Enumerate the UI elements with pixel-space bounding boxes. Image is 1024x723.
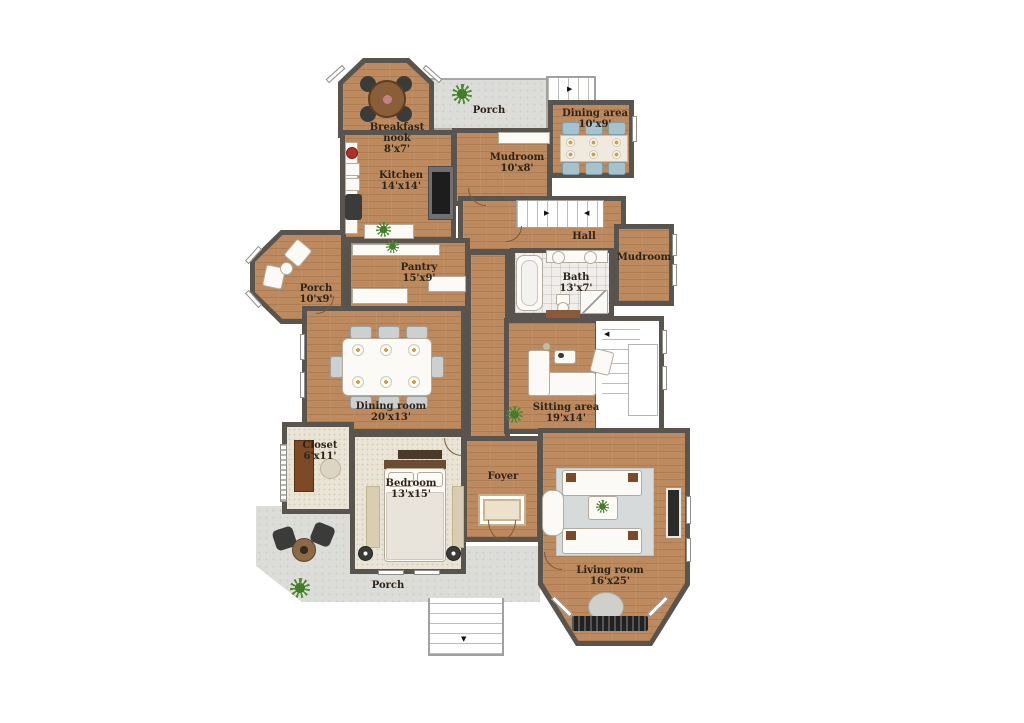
fireplace xyxy=(666,488,681,538)
stairs-left-arrow-icon: ◀ xyxy=(604,331,609,338)
hall-stairs-left-arrow-icon: ◀ xyxy=(584,210,589,217)
window xyxy=(686,538,691,562)
plant-icon xyxy=(452,84,472,104)
plate xyxy=(380,344,392,356)
bath-mat xyxy=(546,310,580,318)
bed-blanket xyxy=(386,492,444,560)
wall-oven xyxy=(345,163,360,176)
window xyxy=(662,366,667,390)
plate xyxy=(612,150,621,159)
throw-pillow xyxy=(566,531,576,540)
room-label-pantry: Pantry15'x9' xyxy=(379,262,459,284)
porch-side-table xyxy=(280,262,293,275)
closet-room xyxy=(282,422,354,514)
plant-icon xyxy=(386,240,399,253)
exterior-stairs-bottom xyxy=(428,598,504,656)
room-label-living-room: Living room16'x25' xyxy=(570,565,650,587)
plant-icon xyxy=(290,578,310,598)
plate xyxy=(566,138,575,147)
room-label-porch-left: Porch10'x9' xyxy=(276,283,356,305)
window xyxy=(300,334,305,360)
throw-pillow xyxy=(628,473,638,482)
kitchen-red-appliance xyxy=(346,147,358,159)
plate xyxy=(352,344,364,356)
room-label-mudroom-top: Mudroom10'x8' xyxy=(477,152,557,174)
window xyxy=(686,496,691,524)
hall-staircase xyxy=(516,200,604,228)
plate xyxy=(612,138,621,147)
plate xyxy=(589,150,598,159)
plate xyxy=(566,150,575,159)
dining-area-chair xyxy=(585,162,603,175)
floor-plan-canvas: ▶ ▼ ◀ ▶ ◀ xyxy=(0,0,1024,723)
window xyxy=(662,330,667,354)
wall-oven xyxy=(345,178,360,191)
bedroom-bench xyxy=(398,450,442,459)
room-label-bath: Bath13'x7' xyxy=(536,272,616,294)
room-label-closet: Closet6'x11' xyxy=(280,440,360,462)
room-label-breakfast-nook: Breakfast nook8'x7' xyxy=(367,122,427,156)
room-label-kitchen: Kitchen14'x14' xyxy=(361,170,441,192)
coffee-table xyxy=(554,350,576,364)
dining-area-chair xyxy=(608,162,626,175)
plate xyxy=(408,376,420,388)
bath-sink xyxy=(584,251,597,264)
mudroom-bench xyxy=(498,132,550,144)
porch-round-table xyxy=(292,538,316,562)
window xyxy=(672,264,677,286)
room-label-hall: Hall xyxy=(544,231,624,242)
plate xyxy=(380,376,392,388)
porch-top-floor xyxy=(424,78,548,130)
pouf xyxy=(542,342,551,351)
bath-sink xyxy=(552,251,565,264)
throw-pillow xyxy=(566,473,576,482)
window xyxy=(378,570,404,575)
stairs-right-landing xyxy=(628,344,658,416)
hall-stairs-right-arrow-icon: ▶ xyxy=(544,210,549,217)
pantry-counter-bottom xyxy=(352,288,408,304)
window xyxy=(300,372,305,398)
radiator xyxy=(572,616,648,631)
dining-chair xyxy=(431,356,444,378)
plate xyxy=(589,138,598,147)
bedside-runner xyxy=(452,486,464,548)
stairs-down-arrow-icon: ▼ xyxy=(461,636,466,643)
room-label-mudroom-right: Mudroom xyxy=(604,252,684,263)
plant-icon xyxy=(596,500,609,513)
window xyxy=(414,570,440,575)
room-label-foyer: Foyer xyxy=(463,471,543,482)
floor-lamp xyxy=(446,546,461,561)
kitchen-sink-unit xyxy=(345,194,362,220)
curved-loveseat xyxy=(542,490,564,536)
plate xyxy=(408,344,420,356)
room-label-porch-top: Porch xyxy=(449,105,529,116)
room-label-bedroom: Bedroom13'x15' xyxy=(371,478,451,500)
room-label-dining-room: Dining room20'x13' xyxy=(351,401,431,423)
table-decor xyxy=(558,353,564,358)
throw-pillow xyxy=(628,531,638,540)
room-label-porch-bottom: Porch xyxy=(348,580,428,591)
stairs-up-arrow-icon: ▶ xyxy=(567,86,572,93)
plate xyxy=(352,376,364,388)
room-label-dining-area: Dining area10'x9' xyxy=(555,108,635,130)
nook-centerpiece xyxy=(383,95,392,104)
plant-icon xyxy=(506,406,523,423)
room-label-sitting-area: Sitting area19'x14' xyxy=(526,402,606,424)
dining-area-chair xyxy=(562,162,580,175)
plant-icon xyxy=(376,222,391,237)
sectional-sofa-vertical xyxy=(528,350,550,396)
floor-lamp xyxy=(358,546,373,561)
